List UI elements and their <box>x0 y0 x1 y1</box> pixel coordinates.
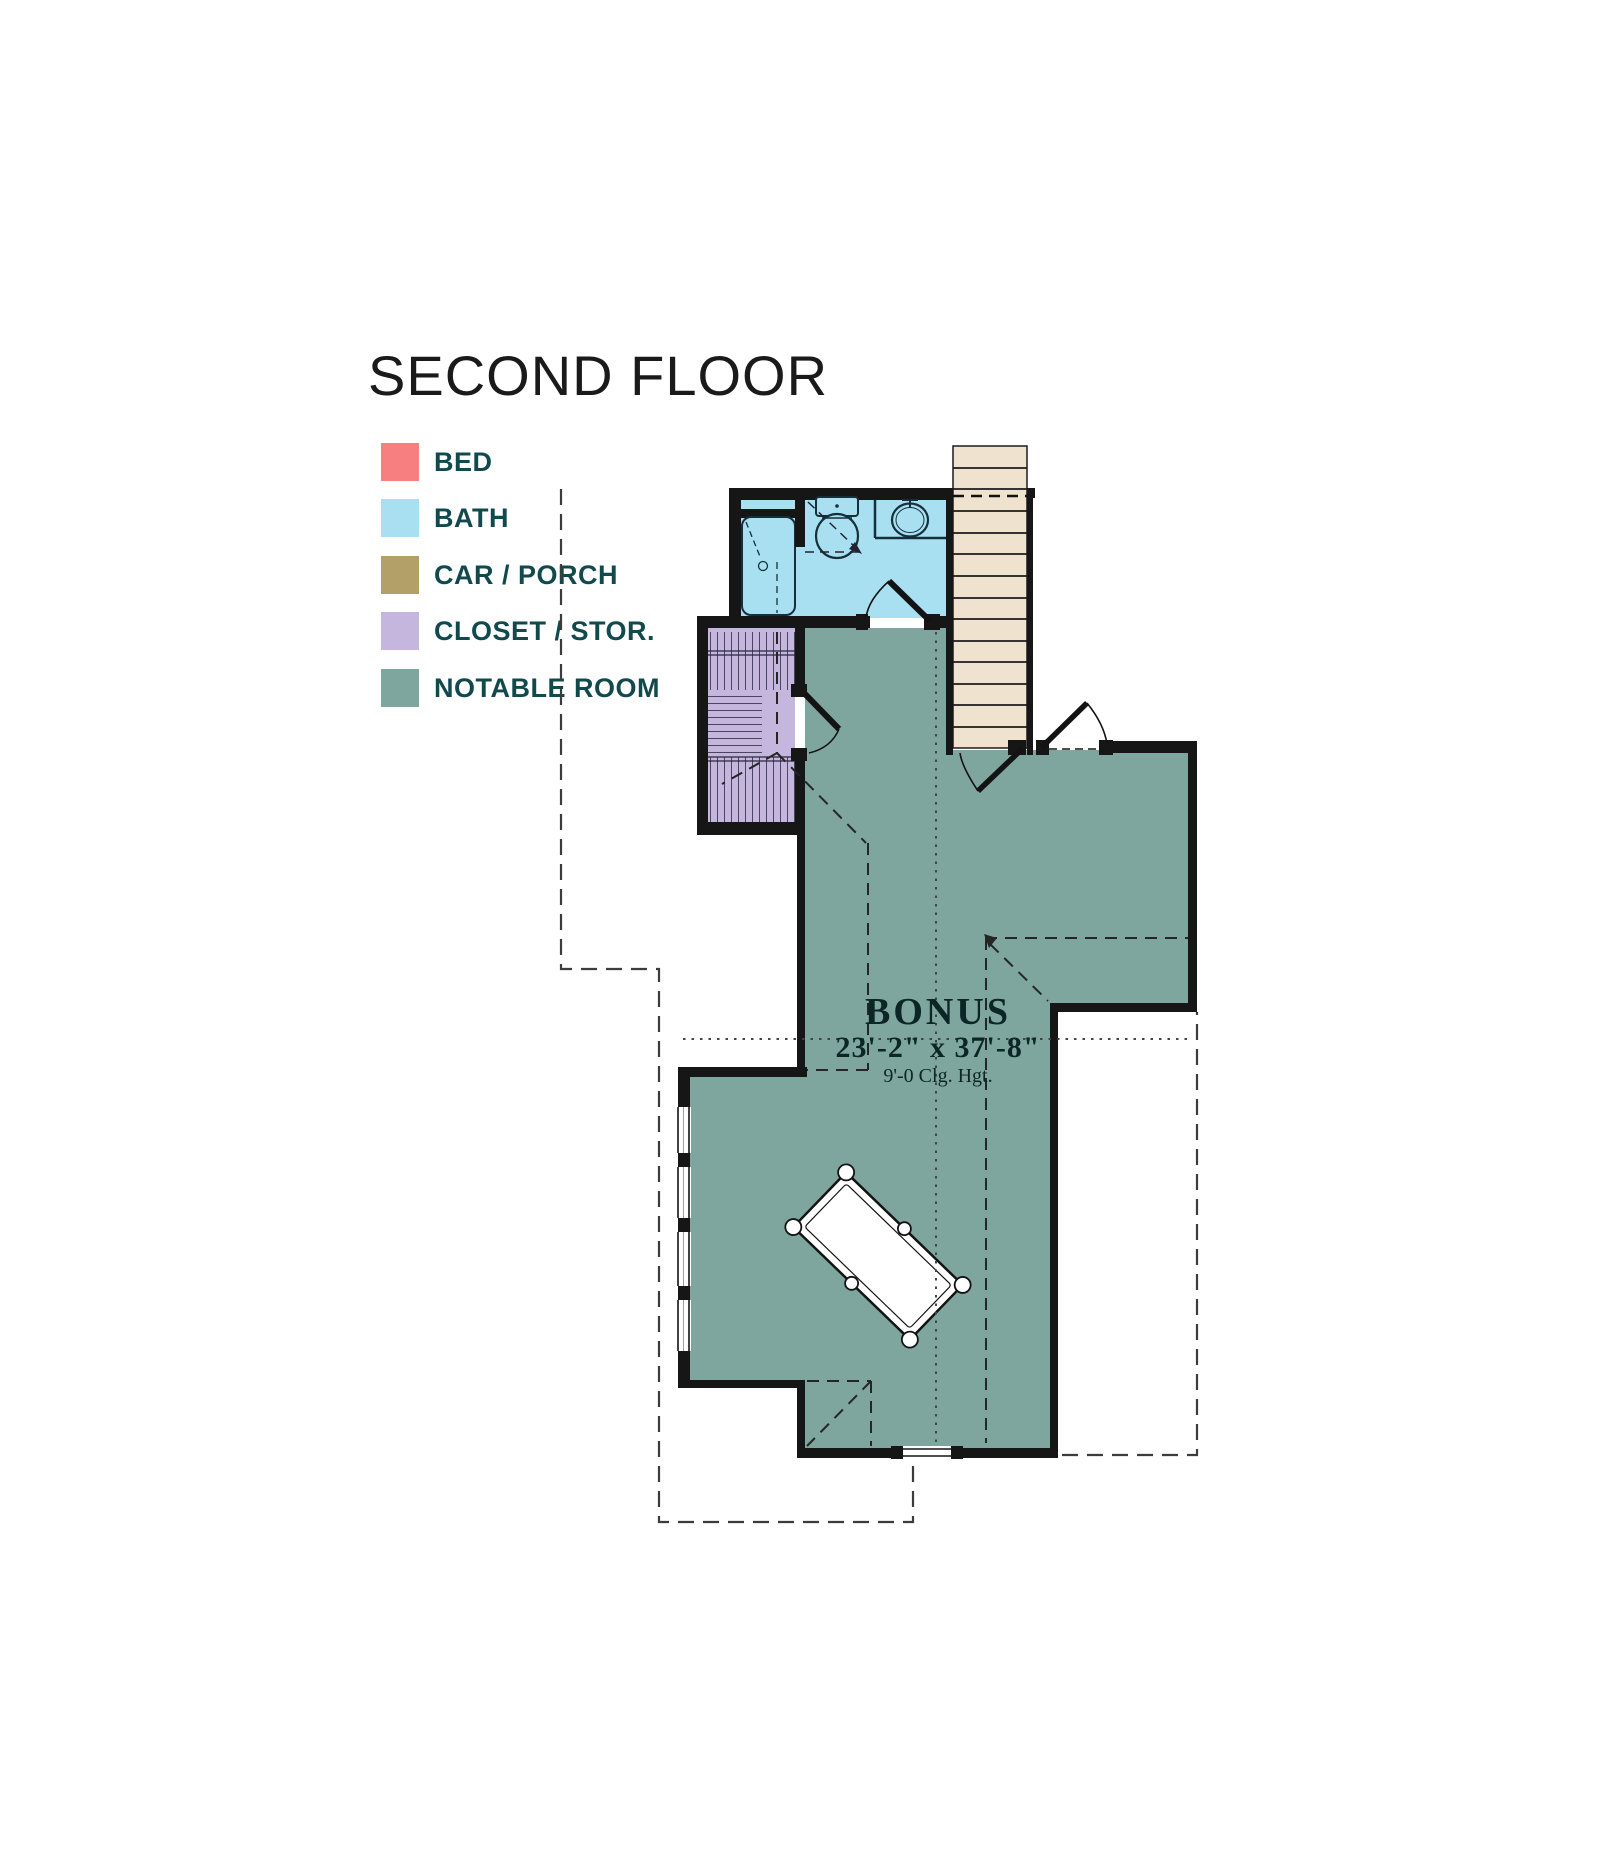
bonus-room-label: BONUS 23'-2" x 37'-8" 9'-0 Clg. Hgt. <box>828 993 1048 1087</box>
window-icon <box>676 1232 691 1286</box>
window-icon <box>676 1300 691 1351</box>
bottom-window-icon <box>891 1446 963 1459</box>
window-icon <box>676 1107 691 1153</box>
room-ceiling-height: 9'-0 Clg. Hgt. <box>828 1065 1048 1087</box>
floor-plan-page: SECOND FLOOR BED BATH CAR / PORCH CLOSET… <box>0 0 1600 1858</box>
floor-plan-drawing <box>0 0 1600 1858</box>
room-name: BONUS <box>828 993 1048 1031</box>
closet-hatch-icon <box>708 690 762 757</box>
closet-hatch-icon <box>708 632 795 690</box>
stairs-icon <box>953 446 1027 748</box>
window-icon <box>676 1167 691 1218</box>
stair-right-door-icon <box>1042 703 1107 749</box>
room-dimensions: 23'-2" x 37'-8" <box>828 1033 1048 1063</box>
closet <box>708 628 795 824</box>
